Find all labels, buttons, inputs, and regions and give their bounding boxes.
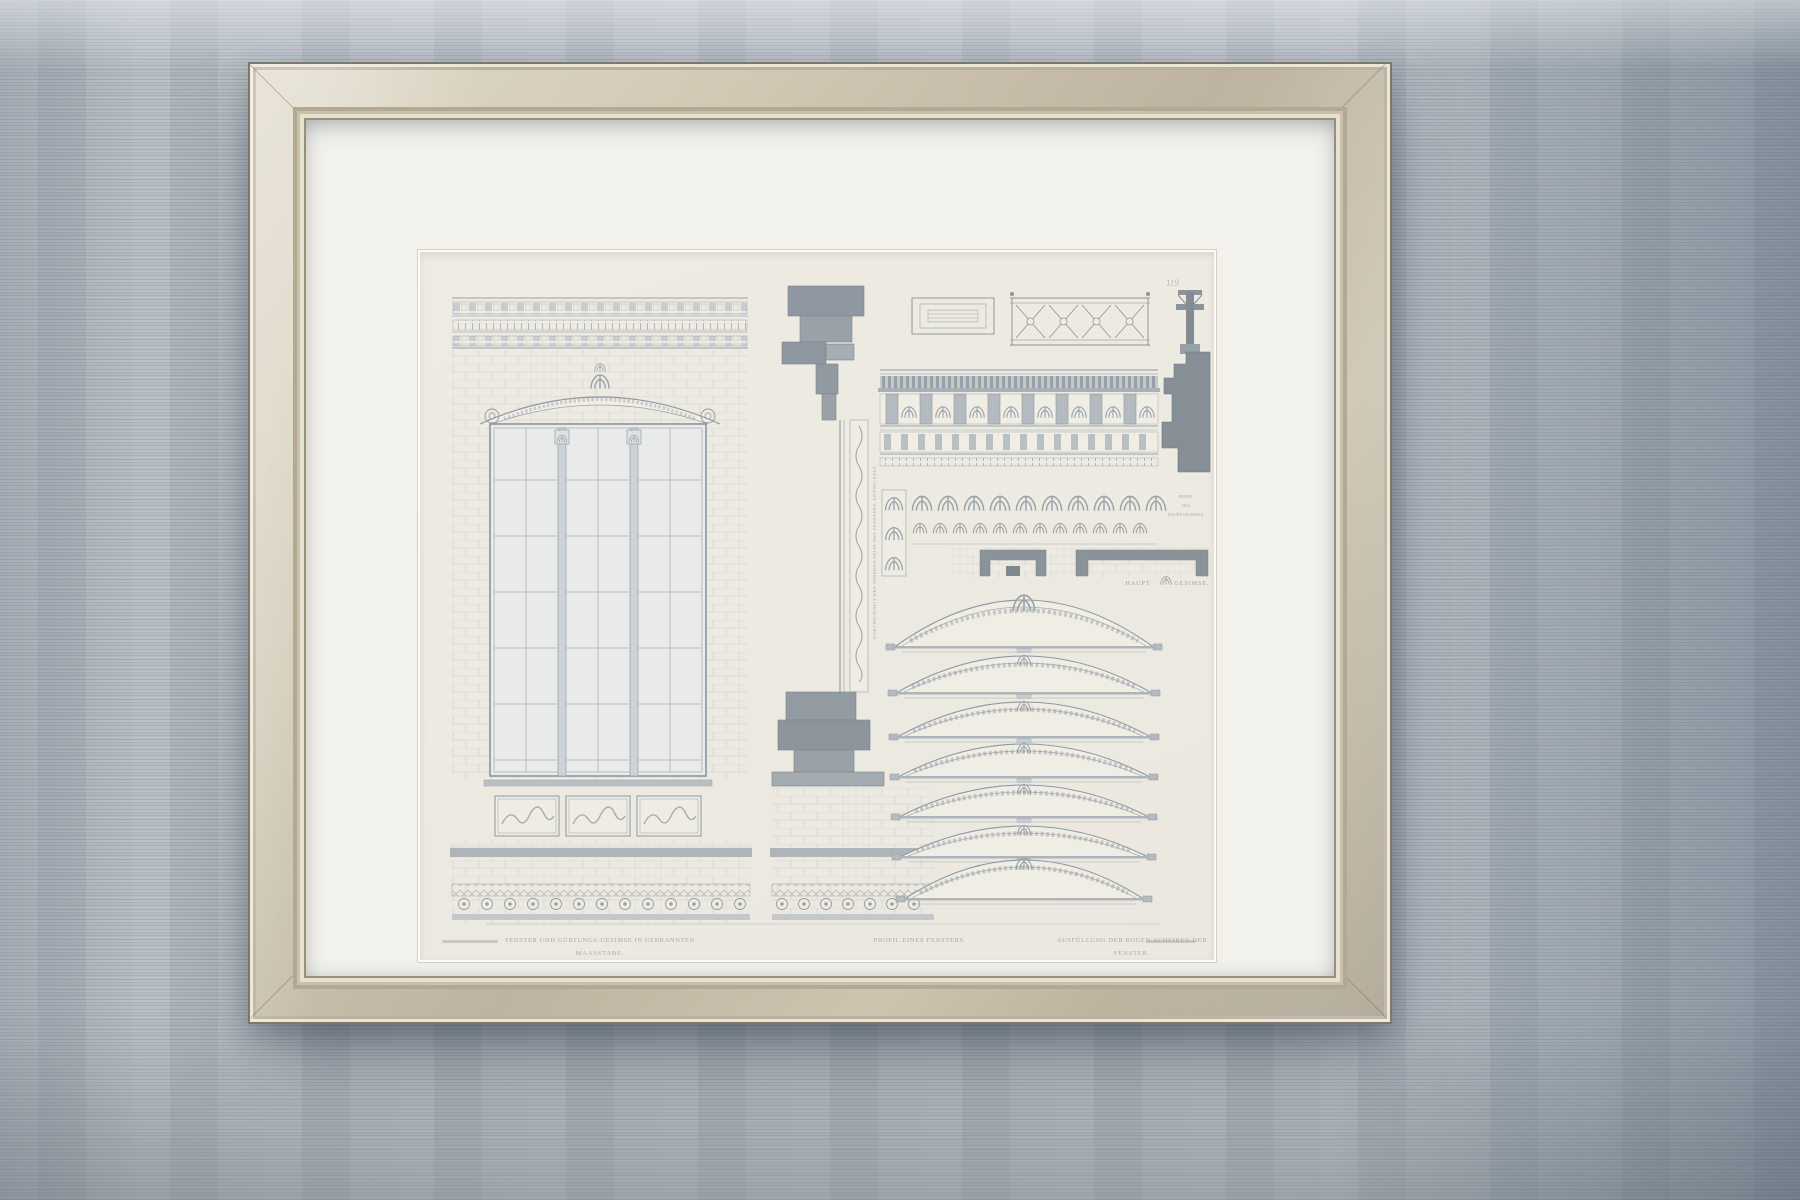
photo-vignette bbox=[0, 0, 1800, 1200]
photo-scene: DURCHSCHNITT DER INNEREN SEITE DES FENST… bbox=[0, 0, 1800, 1200]
